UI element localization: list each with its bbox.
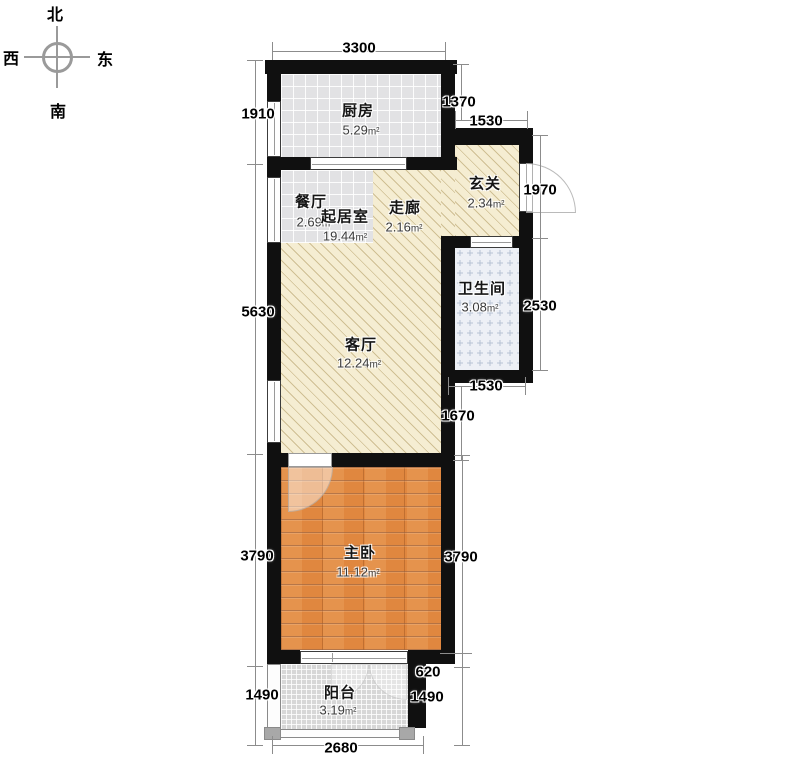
tick [448,377,449,395]
dim-top-width: 3300 [342,40,375,57]
kitchen-pass-door [310,157,407,170]
wall-bathroom-right [519,248,533,383]
dim-line-right-upper [540,135,541,370]
dining-window [267,177,281,243]
tick [247,745,263,746]
tick [532,370,548,371]
dim-foyer-right: 1970 [523,182,556,199]
tick [272,42,273,60]
dim-bedroom-right: 3790 [444,549,477,566]
room-area-living-suite: 19.44m² [323,229,367,244]
tick [453,460,469,461]
tick [455,111,456,129]
room-label-bathroom: 卫生间 [458,278,506,299]
compass-west-label: 西 [3,45,19,69]
compass-east-label: 东 [97,46,113,70]
dim-line-right-lower [462,455,463,745]
dim-balcony-left: 1490 [245,687,278,704]
dim-bathroom-right: 2530 [523,298,556,315]
wall-foyer-bath-right [513,236,533,248]
tick [247,666,263,667]
wall-kitchen-bottom-right [407,157,457,170]
room-area-bedroom: 11.12m² [336,565,379,580]
dim-bathroom-bottom: 1530 [469,378,502,395]
tick [532,135,548,136]
tick [272,736,273,754]
floor-plan: 北 西 东 南 [0,0,800,764]
dim-living-left: 5630 [241,304,274,321]
room-label-corridor: 走廊 [389,197,421,218]
wall-kitchen-right [441,60,455,170]
dim-line-left [255,60,256,745]
balcony-slide-door [300,651,408,664]
room-area-balcony: 3.19m² [320,703,357,718]
room-label-kitchen: 厨房 [342,100,374,121]
dim-balcony-offset: 620 [415,664,440,681]
dim-kitchen-right: 1370 [442,94,475,111]
room-area-bathroom: 3.08m² [462,300,499,315]
corridor-passage-floor [441,170,455,236]
dim-living-right: 1670 [441,408,474,425]
wall-kitchen-bottom-left [267,157,310,170]
wall-bedroom-bottom-left [267,650,300,664]
tick [532,238,548,239]
tick [445,42,446,60]
dim-foyer-top: 1530 [469,113,502,130]
dim-kitchen-left: 1910 [241,106,274,123]
dim-bedroom-left: 3790 [240,548,273,565]
tick [423,736,424,754]
room-area-kitchen: 5.29m² [343,123,380,138]
dim-balcony-right: 1490 [410,689,443,706]
tick [247,454,263,455]
wall-right-above-door [519,128,533,163]
room-label-foyer: 玄关 [469,173,501,194]
tick [454,667,470,668]
room-label-bedroom: 主卧 [344,542,376,563]
compass-circle-icon [42,42,73,73]
tick [454,455,470,456]
room-label-livingroom: 客厅 [345,334,377,355]
room-label-living-suite: 起居室 [321,206,369,227]
tick [453,64,469,65]
tick [525,377,526,395]
wall-bedroom-top-left [267,453,288,467]
tick [527,111,528,129]
tick [247,164,263,165]
balcony-rail-bottom [275,729,412,738]
room-area-foyer: 2.34m² [468,196,505,211]
room-area-corridor: 2.16m² [386,220,423,235]
bedroom-door-opening [288,453,332,467]
bathroom-door [470,236,513,248]
tick [440,653,472,654]
wall-kitchen-top [265,60,457,74]
compass-south-label: 南 [50,98,66,122]
room-label-balcony: 阳台 [324,682,356,703]
dim-bottom-width: 2680 [324,740,357,757]
dim-line-kitchen-right [461,64,462,120]
balcony-post-right [399,727,415,740]
wall-living-right [441,236,455,664]
tick [454,745,470,746]
living-window [267,380,281,443]
compass-north-label: 北 [47,1,63,25]
wall-bedroom-top-right [332,453,455,467]
room-area-livingroom: 12.24m² [337,356,381,371]
tick [247,60,263,61]
